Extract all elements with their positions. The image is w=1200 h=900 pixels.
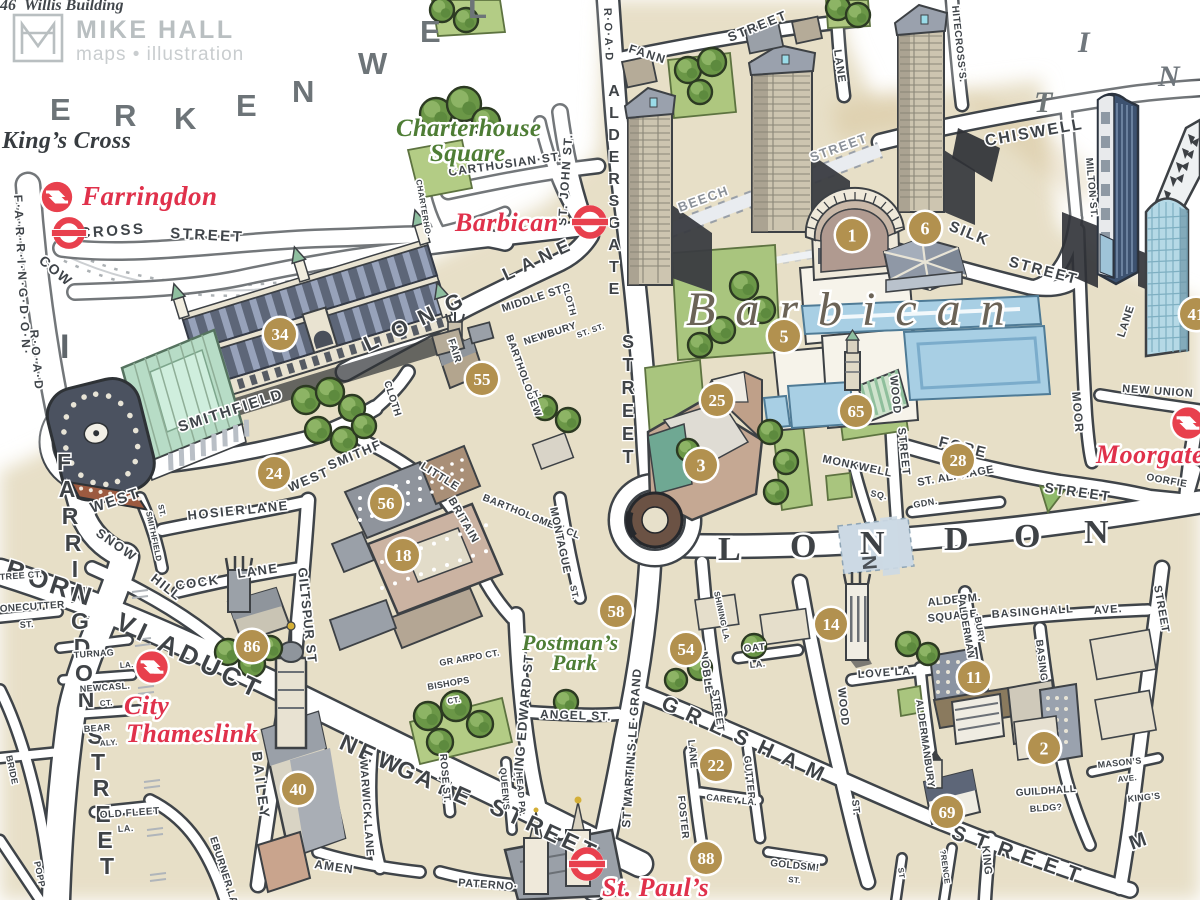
svg-text:T: T <box>91 749 105 775</box>
svg-text:T: T <box>623 355 634 375</box>
svg-text:46 Willis Building: 46 Willis Building <box>0 0 123 14</box>
svg-text:T: T <box>623 447 634 467</box>
svg-text:N: N <box>1157 60 1181 93</box>
svg-text:BEAR: BEAR <box>83 722 111 734</box>
svg-text:A: A <box>59 476 76 502</box>
svg-text:A: A <box>608 83 620 100</box>
svg-text:T: T <box>609 259 619 276</box>
svg-text:W: W <box>358 46 388 81</box>
svg-text:25: 25 <box>709 391 726 410</box>
svg-text:T: T <box>1034 86 1054 119</box>
svg-text:R: R <box>93 775 110 801</box>
svg-text:E: E <box>97 827 112 853</box>
svg-text:LA.: LA. <box>120 660 134 670</box>
svg-text:ST.: ST. <box>19 619 34 630</box>
svg-text:King’s Cross: King’s Cross <box>1 128 131 154</box>
svg-text:E: E <box>420 14 441 49</box>
svg-text:54: 54 <box>678 640 696 659</box>
svg-text:G: G <box>71 608 89 634</box>
svg-text:Farringdon: Farringdon <box>81 181 218 211</box>
svg-text:maps • illustration: maps • illustration <box>76 44 244 65</box>
svg-text:E: E <box>622 401 634 421</box>
svg-text:ANGEL ST.: ANGEL ST. <box>540 707 612 723</box>
svg-text:Moorgate: Moorgate <box>1095 440 1200 469</box>
svg-text:MIKE HALL: MIKE HALL <box>76 16 235 44</box>
svg-text:Park: Park <box>551 650 597 675</box>
svg-text:ST: ST <box>896 867 906 879</box>
svg-text:R: R <box>62 503 79 529</box>
svg-text:S: S <box>609 193 620 210</box>
svg-text:E: E <box>609 149 620 166</box>
svg-text:L: L <box>468 0 487 25</box>
svg-text:88: 88 <box>698 849 715 868</box>
svg-text:11: 11 <box>966 668 982 687</box>
svg-text:3: 3 <box>697 455 706 475</box>
svg-text:41: 41 <box>1188 305 1200 324</box>
svg-text:N: N <box>292 74 314 109</box>
svg-text:Charterhouse: Charterhouse <box>396 115 541 142</box>
svg-text:O: O <box>75 660 93 686</box>
svg-text:ALY.: ALY. <box>100 738 118 748</box>
svg-text:City: City <box>124 691 169 720</box>
svg-text:55: 55 <box>474 370 491 389</box>
svg-text:A: A <box>608 237 620 254</box>
svg-text:I: I <box>60 328 69 366</box>
svg-text:40: 40 <box>290 780 307 799</box>
svg-text:D: D <box>944 521 969 558</box>
svg-text:Barbican: Barbican <box>454 208 559 237</box>
svg-text:18: 18 <box>395 546 412 565</box>
svg-text:R·O·A·D: R·O·A·D <box>601 8 615 62</box>
svg-text:2: 2 <box>1040 738 1049 758</box>
svg-text:Thameslink: Thameslink <box>126 719 258 748</box>
svg-text:O: O <box>790 528 816 565</box>
svg-text:D: D <box>608 127 620 144</box>
svg-text:22: 22 <box>708 756 725 775</box>
svg-text:CT.: CT. <box>100 698 114 708</box>
svg-text:AVE.: AVE. <box>1093 603 1123 617</box>
svg-text:E: E <box>236 88 257 123</box>
svg-text:14: 14 <box>823 615 841 634</box>
svg-text:ST.: ST. <box>788 875 801 885</box>
svg-text:St. Paul’s: St. Paul’s <box>602 873 709 900</box>
svg-text:6: 6 <box>921 218 930 238</box>
svg-text:69: 69 <box>939 803 956 822</box>
svg-text:E: E <box>609 281 620 298</box>
svg-text:34: 34 <box>272 325 290 344</box>
svg-text:S: S <box>622 332 634 352</box>
svg-text:LA.: LA. <box>117 823 134 834</box>
svg-text:OAT: OAT <box>743 642 766 655</box>
svg-text:R: R <box>608 171 620 188</box>
svg-text:N: N <box>1084 514 1109 551</box>
svg-text:N: N <box>860 525 885 562</box>
svg-text:Barbican: Barbican <box>686 283 1025 336</box>
svg-text:LA.: LA. <box>749 658 766 670</box>
svg-text:E: E <box>622 424 634 444</box>
svg-text:28: 28 <box>950 451 967 470</box>
svg-text:ST.: ST. <box>849 799 862 816</box>
svg-text:L: L <box>609 105 619 122</box>
svg-text:24: 24 <box>266 464 284 483</box>
svg-text:T: T <box>100 853 114 879</box>
svg-text:65: 65 <box>848 402 865 421</box>
svg-text:56: 56 <box>378 494 395 513</box>
svg-text:K: K <box>174 101 197 136</box>
svg-text:R: R <box>65 530 82 556</box>
svg-text:Square: Square <box>430 140 505 167</box>
svg-text:5: 5 <box>780 326 789 346</box>
svg-text:I: I <box>1077 26 1091 59</box>
svg-text:F: F <box>57 449 71 475</box>
svg-text:R: R <box>622 378 635 398</box>
svg-text:86: 86 <box>244 637 261 656</box>
svg-text:58: 58 <box>608 602 625 621</box>
svg-text:L: L <box>718 531 741 568</box>
svg-text:E: E <box>50 92 71 127</box>
svg-text:1: 1 <box>848 225 857 245</box>
svg-text:O: O <box>1014 518 1040 555</box>
